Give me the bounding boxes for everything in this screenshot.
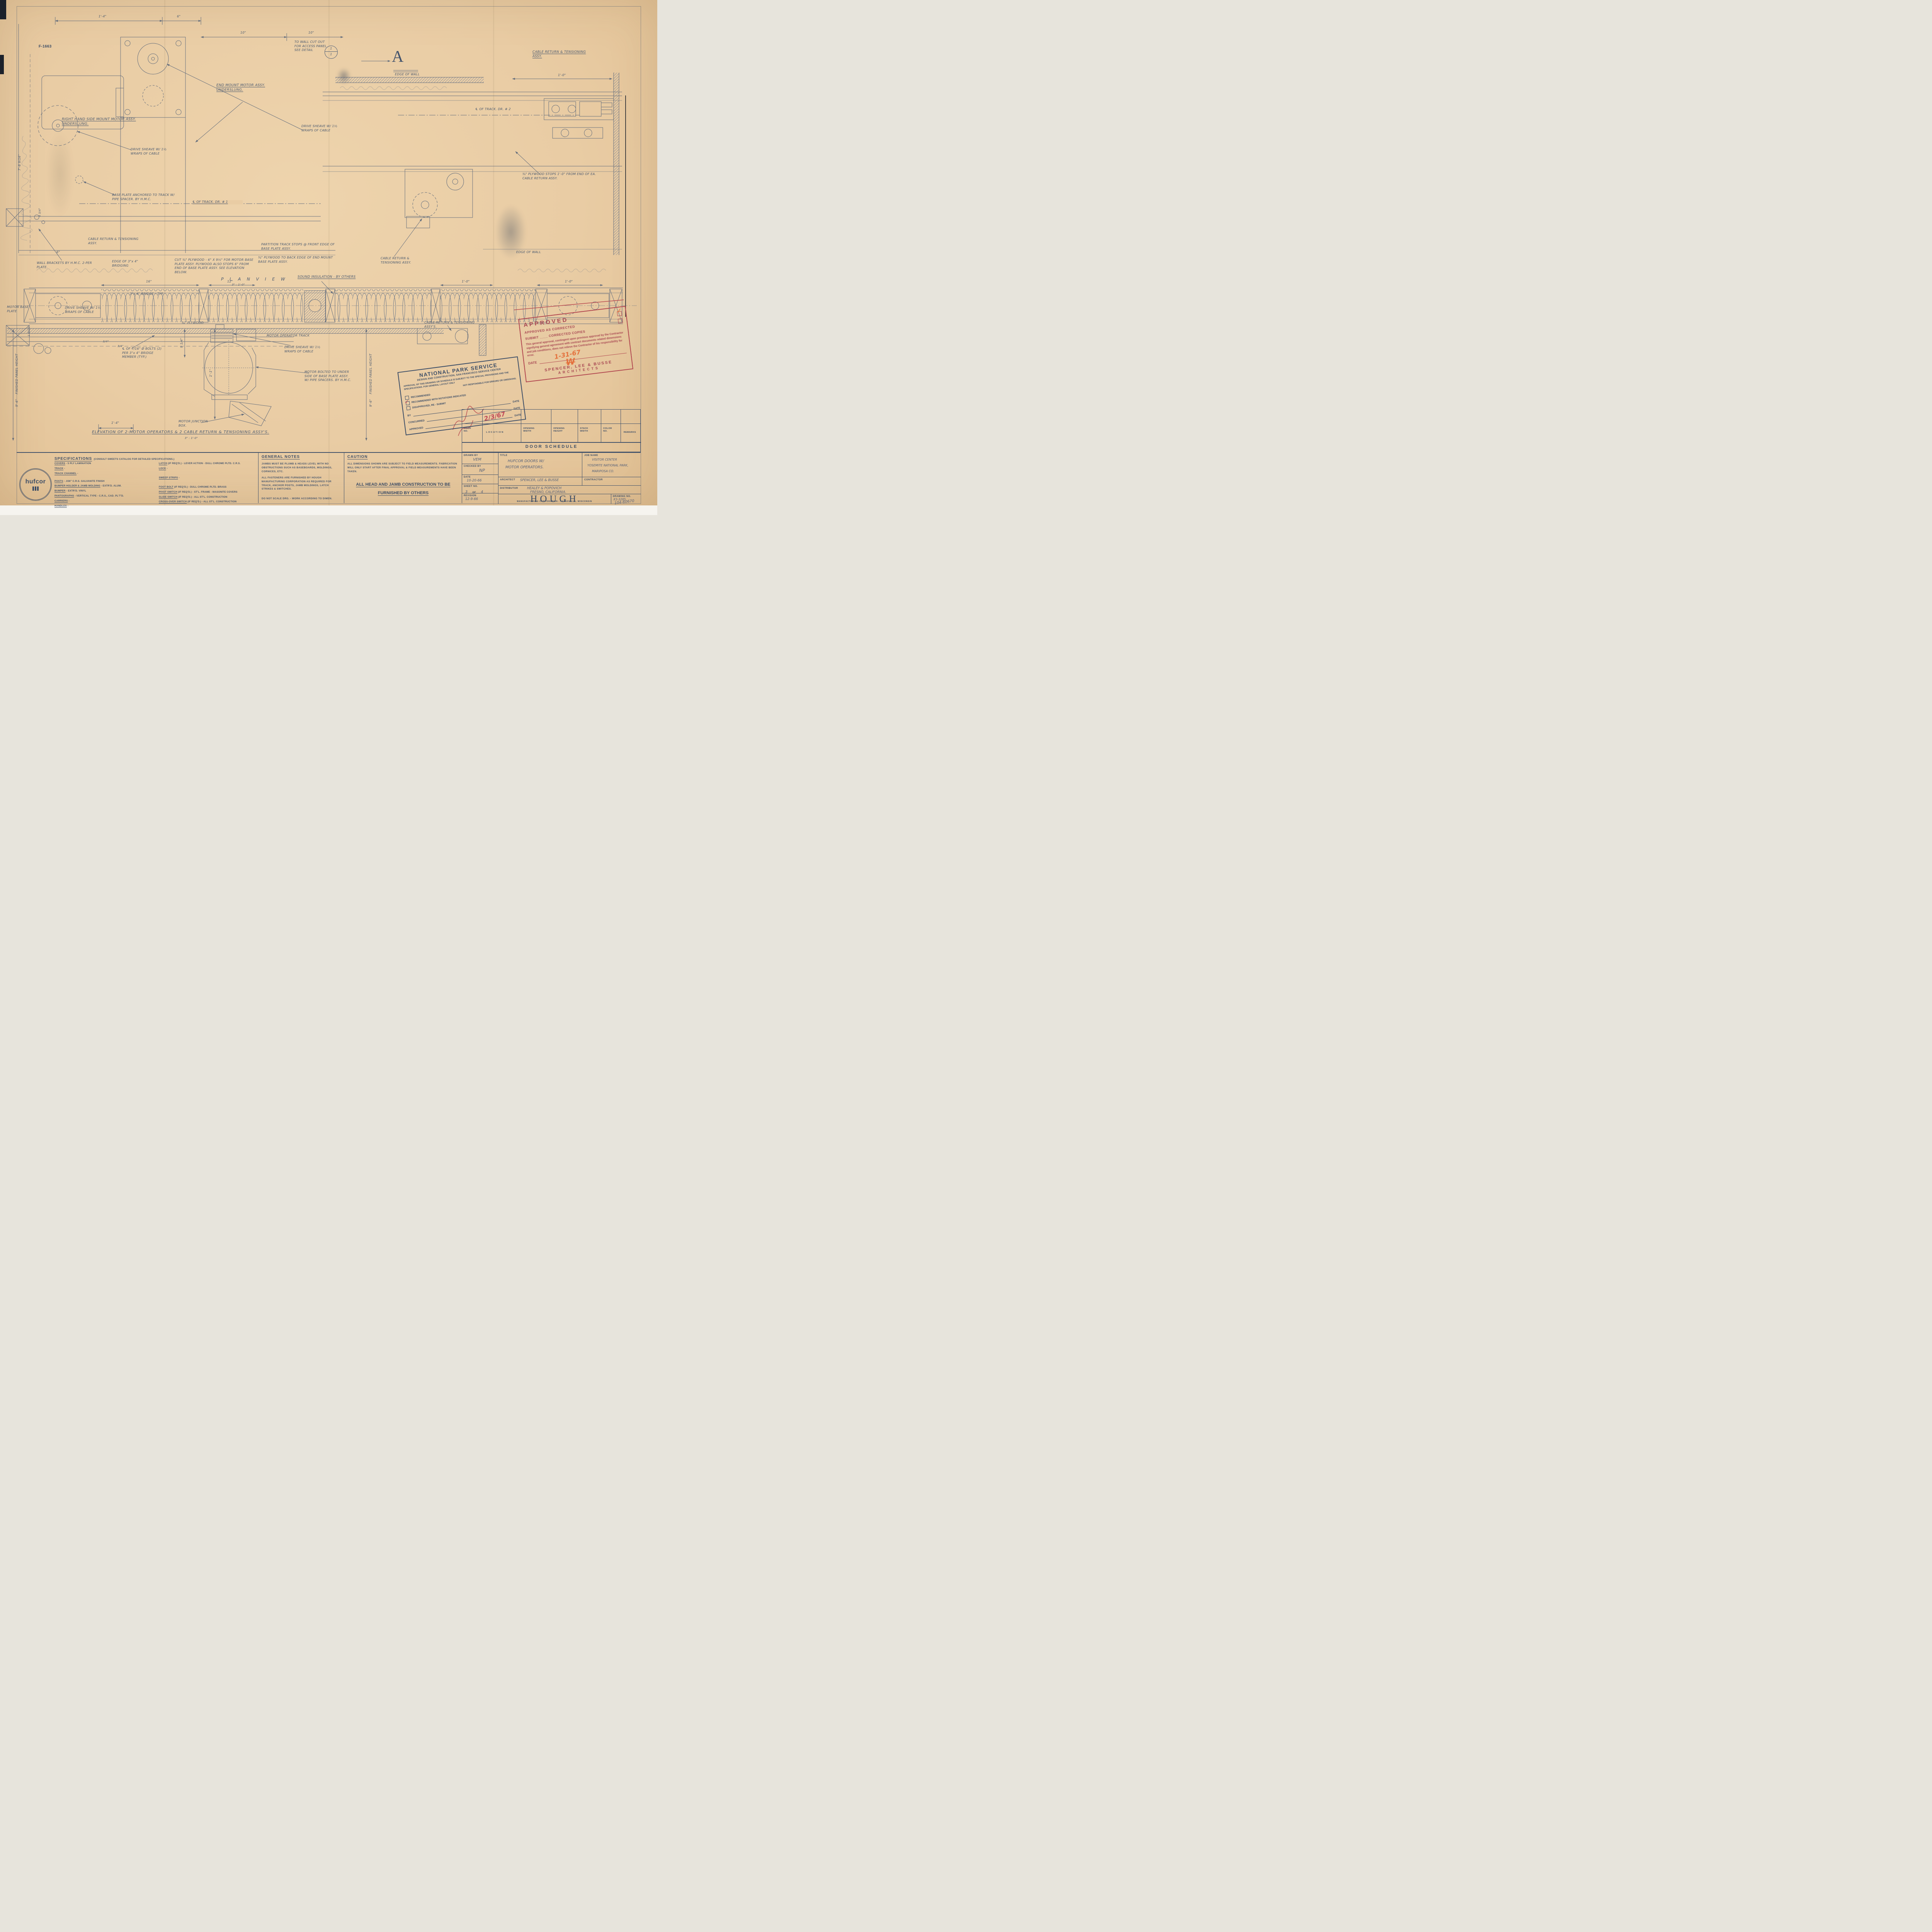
spec-term: TRACK (54, 467, 63, 470)
label-base-plate-anchored: BASE PLATE ANCHORED TO TRACK W/ PIPE SPA… (112, 193, 180, 201)
caution-big-line1: ALL HEAD AND JAMB CONSTRUCTION TO BE (344, 482, 462, 487)
spec-item: TRACK CHANNEL - (54, 472, 153, 475)
dim-1-0-top: 1'-0" (558, 73, 566, 78)
door-schedule-col-remarks: REMARKS (624, 431, 636, 434)
spec-item: HANDLES - (54, 505, 153, 508)
spec-item: FOOT BOLT (IF REQ'D.) - DULL CHROME PLTD… (159, 486, 255, 489)
table-rule (551, 410, 551, 443)
spec-item: PANTOGRAPHS - VERTICAL TYPE - C.R.S., CA… (54, 495, 153, 498)
nps-date-label3: DATE (514, 414, 521, 417)
title-label: TITLE (500, 454, 507, 457)
door-schedule-col-stack-width: STACK WIDTH (580, 427, 588, 433)
paper-sheet: F-1663 RIGHT HAND SIDE MOUNT MOTOR ASSY.… (0, 0, 657, 505)
job-name-label: JOB NAME (584, 454, 598, 457)
spec-desc: - (77, 472, 78, 475)
contractor-label: CONTRACTOR (584, 478, 603, 481)
label-edge-of-wall-right: EDGE OF WALL (516, 250, 557, 255)
tb-rule (462, 474, 498, 475)
specifications-heading-row: SPECIFICATIONS (CONSULT SWEETS CATALOG F… (54, 455, 174, 462)
nps-concurred-label: CONCURRED (408, 419, 425, 424)
stamp-date-label: DATE (528, 361, 537, 366)
caution-heading: CAUTION (347, 455, 368, 459)
elevation-scale: 3" : 1'-0" (185, 437, 198, 440)
caution-big-line2: FURNISHED BY OTHERS (344, 491, 462, 495)
general-notes-p1: JAMBS MUST BE PLUMB & HEADS LEVEL WITH N… (262, 462, 340, 473)
label-plywood-34: ¾" PLYWOOD (182, 321, 214, 325)
door-schedule-col-location: LOCATION (486, 431, 504, 434)
spec-item: SWEEP STRIPS - (159, 476, 255, 480)
tb-rule (498, 477, 641, 477)
spec-item: CROSS-OVER SWITCH (IF REQ'D.) - ALL ST'L… (159, 500, 255, 503)
dim-34b: 3/4" (117, 345, 124, 348)
nps-cb1-label: RECOMMENDED (411, 393, 430, 399)
distributor-value-1: HEALEY & POPOVICH (527, 486, 561, 490)
right-height-dim: 9'-6" FINISHED PANEL HEIGHT (367, 349, 374, 411)
dim-9-6-left: 9'-6" (15, 399, 19, 406)
dim-34a: 3/4" (103, 340, 109, 344)
dim-10a: 10" (240, 31, 246, 35)
distributor-label: DISTRIBUTOR (500, 487, 518, 490)
date-label: DATE (464, 476, 471, 478)
label-plywood-back-edge: ¾" PLYWOOD TO BACK EDGE OF END MOUNT BAS… (258, 256, 341, 264)
label-drive-sheave-elev-right: DRIVE SHEAVE W/ 1½ WRAPS OF CABLE (284, 345, 321, 354)
sheet-no-a: 3 (465, 490, 468, 494)
label-cable-return-mid-right: CABLE RETURN & TENSIONING ASSY. (381, 257, 429, 265)
door-schedule-col-opening-height: OPENING HEIGHT (553, 427, 565, 433)
nps-date-label: DATE (513, 400, 520, 403)
spec-desc: (IF REQ'D.) - ALL ST'L. CONSTRUCTION (178, 496, 227, 498)
caution-block: CAUTION ALL DIMENSIONS SHOWN ARE SUBJECT… (344, 452, 462, 503)
label-end-mount: END MOUNT MOTOR ASSY. UNDERSLUNG. (216, 83, 284, 93)
cable-return-assembly-top-right (515, 99, 614, 175)
label-motor-bolted-note: MOTOR BOLTED TO UNDER SIDE OF BASE PLATE… (304, 370, 353, 383)
dim-6b: 6" (56, 250, 60, 255)
label-finished-panel-height-right: FINISHED PANEL HEIGHT (369, 354, 372, 394)
label-drive-sheave-top: DRIVE SHEAVE W/ 1½ WRAPS OF CABLE (301, 124, 345, 133)
spec-right-column: LATCH (IF REQ'D.) - LEVER ACTION - DULL … (159, 462, 255, 505)
title-value-1: HUFCOR DOORS W/ (508, 459, 544, 463)
left-height-dim: 9'-6" FINISHED PANEL HEIGHT (13, 349, 20, 411)
spec-desc: - (68, 505, 68, 507)
dim-1-4-elev: 1'-4" (111, 421, 119, 425)
hufcor-logo-text: hufcor (26, 478, 46, 485)
dim-9-6-right: 9'-6" (369, 399, 372, 406)
door-schedule-col-door: DOOR NO. (464, 427, 471, 433)
nps-date-label2: DATE (514, 407, 520, 410)
dim-1-0-plan-a: 1'-0" (462, 280, 469, 284)
sheet-no-label: SHEET NO. (464, 485, 478, 488)
spec-term: PANTOGRAPHS (54, 495, 74, 497)
general-notes-p3: DO NOT SCALE DRG. - WORK ACCORDING TO DI… (262, 497, 342, 501)
table-rule (621, 410, 621, 443)
dim-9-14: 9 1/4" (180, 338, 184, 348)
checked-by-label: CHECKED BY (464, 465, 481, 468)
nps-approved-label: APPROVED (409, 427, 423, 431)
hough-logo: HOUGH (498, 494, 611, 505)
spec-desc: - VERTICAL TYPE - C.R.S., CAD. PL'T'D. (75, 495, 124, 497)
general-notes-heading: GENERAL NOTES (262, 455, 300, 459)
spec-term: HANDLES (54, 505, 67, 507)
spec-desc: (IF REQ'D.) - LEVER ACTION - DULL CHROME… (168, 462, 241, 465)
door-schedule-col-opening-width: OPENING WIDTH (523, 427, 534, 433)
architect-approval-stamp: APPROVED ✓ APPROVED AS CORRECTED SUBMIT … (518, 306, 633, 383)
title-block: DRAWN BY VEM CHECKED BY NP DATE 10-20-66… (462, 452, 641, 503)
drawn-by-value: VEM (473, 457, 481, 462)
label-drive-sheave-elev-left: DRIVE SHEAVE W/ 1½ WRAPS OF CABLE (65, 306, 108, 314)
caution-p1: ALL DIMENSIONS SHOWN ARE SUBJECT TO FIEL… (347, 462, 457, 473)
spec-term: COVERS (54, 462, 65, 465)
date-value: 10-20-66 (467, 479, 482, 483)
hufcor-logo: hufcor (19, 468, 52, 501)
sheet-no-of: OF (473, 491, 476, 494)
table-rule (601, 410, 601, 443)
spec-term: LATCH (159, 462, 167, 465)
spec-desc: (IF REQ'D.) - DULL CHROME PLTD. BRASS (174, 486, 227, 488)
general-notes-block: GENERAL NOTES JAMBS MUST BE PLUMB & HEAD… (258, 452, 344, 503)
orange-check-mark: ✓ (616, 306, 624, 315)
spec-item: GLIDE SWITCH (IF REQ'D.) - ALL ST'L. CON… (159, 496, 255, 499)
spec-term: CROSS-OVER SWITCH (159, 500, 187, 503)
spec-item: BUMPER HOLDER & JAMB MOLDING - EXTR'D. A… (54, 485, 153, 488)
nps-by-label: BY (407, 414, 411, 417)
spec-desc: - 5 PLY LAMINATION (66, 462, 91, 465)
spec-item: BUMPER - EXTR'D. VINYL (54, 490, 153, 493)
general-notes-p2: ALL FASTENERS ARE FURNISHED BY HOUGH MAN… (262, 476, 340, 491)
label-cut-plywood-note: CUT ¾" PLYWOOD - 6" X 9½" FOR MOTOR BASE… (175, 258, 254, 274)
spec-item: LATCH (IF REQ'D.) - LEVER ACTION - DULL … (159, 462, 255, 465)
label-wall-brackets: WALL BRACKETS BY H.M.C. 2-PER PLATE. (37, 261, 97, 269)
spec-term: GLIDE SWITCH (159, 496, 177, 498)
spec-term: BUMPER (54, 490, 66, 492)
dim-12: 12" (227, 280, 233, 284)
cable-return-assembly-mid (394, 169, 473, 257)
spec-term: FOOT BOLT (159, 486, 173, 488)
spec-item: CARRIERS - (54, 500, 153, 503)
spec-item: COVERS - 5 PLY LAMINATION (54, 462, 153, 465)
detail-marker: 1 1 (325, 46, 338, 59)
label-bolts-note: ℄ OF 7/16" Ø BOLTS (2) PER 3"x 4" BRIDGE… (122, 347, 163, 359)
orange-initials: W (565, 357, 576, 368)
spec-desc: - .036" C.R.S. GALVANITE FINISH (64, 480, 104, 483)
job-name-3: MARIPOSA CO. (592, 469, 614, 473)
checkbox-icon (406, 406, 410, 410)
label-edge-of-wall-top: EDGE OF WALL (395, 73, 437, 77)
tb-rule (611, 494, 611, 504)
title-value-2: MOTOR OPERATORS. (505, 465, 544, 469)
spec-term: BUMPER HOLDER & JAMB MOLDING (54, 485, 100, 487)
detail-marker-top: 1 (325, 46, 337, 51)
checkbox-icon: ✓ (617, 311, 622, 316)
section-marker-a: A (392, 46, 404, 68)
label-finished-panel-height-left: FINISHED PANEL HEIGHT (15, 354, 19, 394)
label-bridge-typ: 3"x 4" BRIDGE - TYP. (130, 292, 186, 296)
spec-desc: - (167, 467, 168, 470)
label-partition-stops: PARTITION TRACK STOPS @ FRONT EDGE OF BA… (261, 243, 337, 251)
tb-rule (582, 453, 582, 485)
specifications-block: SPECIFICATIONS (CONSULT SWEETS CATALOG F… (17, 452, 258, 503)
sheet-no-b: 4 (481, 490, 483, 494)
tb-rule (462, 464, 498, 464)
spec-item: LOCK - (159, 467, 255, 470)
door-schedule-title: DOOR SCHEDULE (462, 444, 641, 449)
drawing-no-label: DRAWING NO. (613, 495, 631, 498)
tb-rule (498, 485, 641, 486)
architect-label: ARCHITECT (500, 478, 515, 481)
label-motor-base-plate: MOTOR BASE PLATE (7, 305, 35, 313)
label-motor-operator-track: MOTOR OPERATOR TRACK (267, 334, 311, 338)
label-drive-sheave-left: DRIVE SHEAVE W/ 1½ WRAPS OF CABLE (131, 148, 174, 156)
sheet-ref-number: F-1663 (39, 44, 52, 49)
spec-item: TRACK - (54, 467, 153, 470)
detail-marker-bottom: 1 (325, 52, 337, 57)
dim-4-34: 4 3/4" (38, 208, 42, 217)
red-check-mark: ✓ (404, 399, 410, 405)
spec-desc: (IF REQ'D.) - ST'L. FRAME - MASONITE COV… (178, 491, 238, 493)
spec-item: POSTS - .036" C.R.S. GALVANITE FINISH (54, 480, 153, 483)
drawn-by-label: DRAWN BY (464, 454, 478, 457)
door-schedule-col-color-no: COLOR NO. (603, 427, 612, 433)
spec-desc: (IF REQ'D.) - ALL ST'L. CONSTRUCTION (187, 500, 236, 503)
tb-rule (462, 484, 498, 484)
wall-and-track-plan (79, 73, 622, 255)
label-plywood-stops: ¾" PLYWOOD STOPS 1'-0" FROM END OF EA. C… (522, 172, 605, 180)
dim-10b: 10" (308, 31, 314, 35)
scanned-blueprint: F-1663 RIGHT HAND SIDE MOUNT MOTOR ASSY.… (0, 0, 657, 515)
label-edge-bridging: EDGE OF 3"x 4" BRIDGING (112, 260, 155, 268)
spec-desc: - (64, 467, 65, 470)
spec-term: TRACK CHANNEL (54, 472, 77, 475)
spec-item: PIVOT SWITCH (IF REQ'D.) - ST'L. FRAME -… (159, 491, 255, 494)
spec-left-column: COVERS - 5 PLY LAMINATION TRACK - TRACK … (54, 462, 153, 509)
spec-term: PIVOT SWITCH (159, 491, 177, 493)
checkbox-icon (618, 318, 623, 323)
dim-1-916: 1 9/16" (27, 326, 31, 337)
spec-term: POSTS (54, 480, 63, 483)
dim-6: 6" (177, 15, 180, 19)
plan-view-scale: 3" : 1'-0" (232, 283, 245, 287)
hufcor-logo-bars-icon (32, 486, 39, 491)
label-cable-return-mid-left: CABLE RETURN & TENSIONING ASSY. (88, 237, 140, 245)
table-rule (578, 410, 578, 443)
label-track-centerline-1: ℄ OF TRACK. DR. # 1 (192, 200, 243, 204)
specifications-heading-note: (CONSULT SWEETS CATALOG FOR DETAILED SPE… (94, 458, 175, 461)
spec-desc: - EXTR'D. VINYL (66, 490, 86, 492)
spec-term: SWEEP STRIPS (159, 476, 178, 479)
dim-16: 16" (146, 280, 152, 284)
hough-sub-text: MANUFACTURING CORPORATION - JANESVILLE, … (500, 500, 609, 503)
revision-value: 12-9-66 (465, 497, 478, 501)
label-track-centerline-2: ℄ OF TRACK. DR. # 2 (475, 107, 526, 112)
end-mount-motor-assembly (121, 37, 302, 253)
job-name-1: VISITOR CENTER (592, 458, 617, 461)
spec-term: LOCK (159, 467, 166, 470)
label-cable-return-top: CABLE RETURN & TENSIONING ASSY. (532, 50, 587, 59)
upper-left-motor-assembly (6, 24, 335, 260)
label-cable-return-elev: CABLE RETURN & TENSIONING ASSY'S. (424, 321, 484, 329)
dim-1-4: 1'-4" (99, 15, 106, 19)
dim-1-0-plan-b: 1'-0" (565, 280, 573, 284)
spec-desc: - EXTR'D. ALUM. (101, 485, 122, 487)
dim-1-1: 1'-1" (209, 369, 213, 377)
spec-term: CARRIERS (54, 500, 68, 502)
table-rule (462, 442, 641, 443)
label-sound-insulation: SOUND INSULATION - BY OTHERS (298, 275, 388, 279)
elevation-title: ELEVATION OF 2-MOTOR OPERATORS & 2 CABLE… (92, 430, 335, 435)
job-name-2: YOSEMITE NATIONAL PARK, (587, 464, 628, 467)
revision-label: REVISION (464, 494, 476, 497)
specifications-heading: SPECIFICATIONS (54, 457, 92, 461)
spec-desc: - (179, 476, 179, 479)
dim-7-8: 7'-8 9/16" (18, 154, 22, 170)
label-motor-junction-box: MOTOR JUNCTION BOX. (179, 420, 215, 428)
spec-desc: - (68, 500, 69, 502)
architect-value: SPENCER, LEE & BUSSE (520, 478, 559, 482)
checked-by-value: NP (479, 468, 485, 473)
label-right-hand-side-mount: RIGHT HAND SIDE MOUNT MOTOR ASSY. UNDERS… (62, 117, 141, 127)
